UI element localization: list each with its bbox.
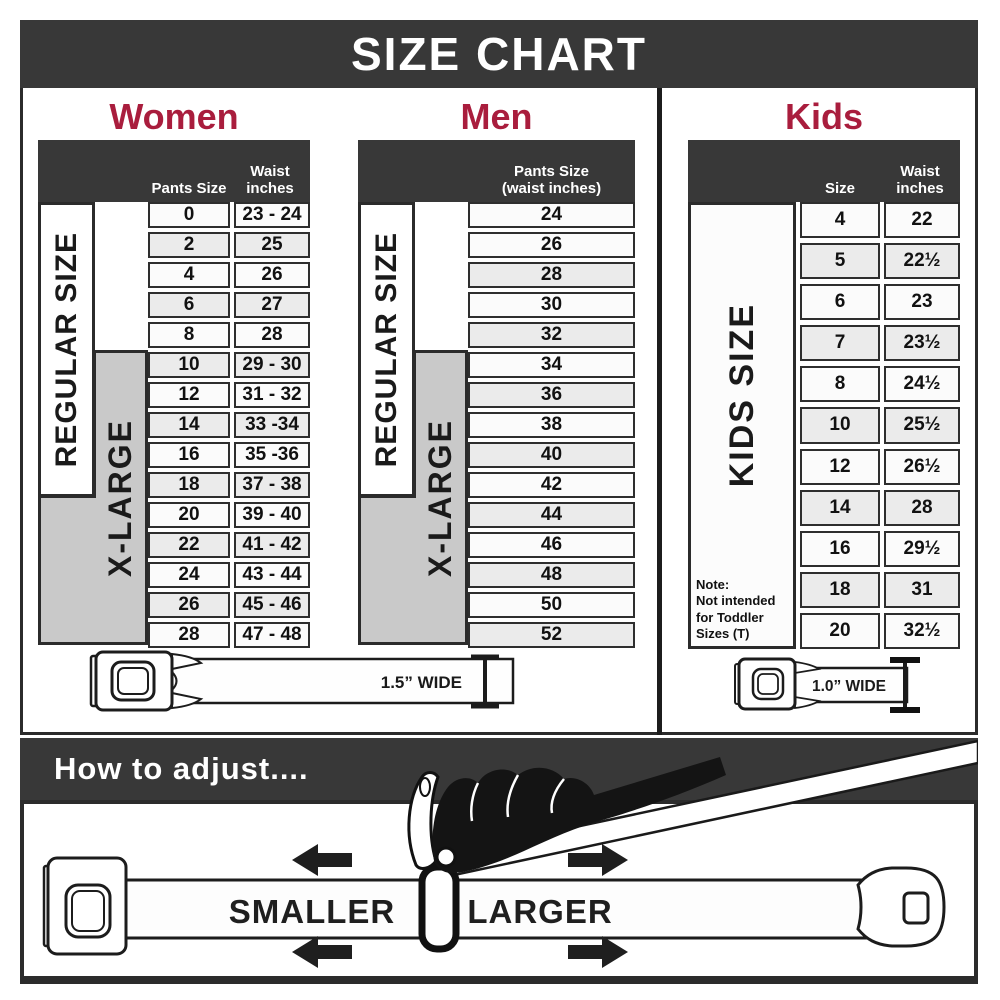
adjust-illustration: SMALLER LARGER: [20, 735, 978, 980]
adult-belt-width-label: 1.5” WIDE: [381, 673, 462, 692]
table-row: 18 31: [800, 572, 960, 608]
table-row: 34: [468, 352, 635, 378]
size-cell: 4: [800, 202, 880, 238]
pants-size-cell: 46: [468, 532, 635, 558]
pants-size-cell: 28: [468, 262, 635, 288]
pants-size-cell: 2: [148, 232, 230, 258]
waist-cell: 33 -34: [234, 412, 310, 438]
kids-size-header: Size: [800, 180, 880, 197]
waist-cell: 35 -36: [234, 442, 310, 468]
pants-size-cell: 30: [468, 292, 635, 318]
pants-size-cell: 18: [148, 472, 230, 498]
size-cell: 20: [800, 613, 880, 649]
size-cell: 18: [800, 572, 880, 608]
buckle-button-inner: [72, 891, 104, 931]
waist-cell: 24½: [884, 366, 960, 402]
title-bar: SIZE CHART: [20, 20, 978, 88]
waist-cell: 32½: [884, 613, 960, 649]
pants-size-cell: 38: [468, 412, 635, 438]
men-regular-size-band: REGULAR SIZE: [358, 202, 415, 497]
table-row: 52: [468, 622, 635, 648]
table-row: 8 28: [148, 322, 310, 348]
size-cell: 10: [800, 407, 880, 443]
women-pants-size-header: Pants Size: [148, 180, 230, 197]
kids-size-label: KIDS SIZE: [723, 303, 762, 487]
table-row: 2 25: [148, 232, 310, 258]
pants-size-cell: 26: [148, 592, 230, 618]
arrow-right-icon: [568, 936, 628, 968]
table-row: 14 28: [800, 490, 960, 526]
waist-cell: 26: [234, 262, 310, 288]
waist-cell: 41 - 42: [234, 532, 310, 558]
arrow-left-icon: [292, 936, 352, 968]
width-measure-cap-bottom: [890, 707, 920, 713]
waist-cell: 26½: [884, 449, 960, 485]
width-measure-cap-top: [890, 657, 920, 663]
table-row: 10 25½: [800, 407, 960, 443]
pants-size-cell: 10: [148, 352, 230, 378]
men-size-bands: REGULAR SIZE X-LARGE: [358, 202, 468, 645]
pants-size-cell: 20: [148, 502, 230, 528]
pants-size-cell: 12: [148, 382, 230, 408]
table-row: 50: [468, 592, 635, 618]
table-row: 40: [468, 442, 635, 468]
table-row: 4 26: [148, 262, 310, 288]
pants-size-cell: 24: [148, 562, 230, 588]
size-cell: 8: [800, 366, 880, 402]
table-row: 26 45 - 46: [148, 592, 310, 618]
thumb-tip: [437, 848, 455, 866]
table-row: 18 37 - 38: [148, 472, 310, 498]
women-waist-header: Waist inches: [234, 163, 306, 198]
men-heading: Men: [358, 96, 635, 138]
waist-cell: 27: [234, 292, 310, 318]
waist-cell: 37 - 38: [234, 472, 310, 498]
table-row: 12 26½: [800, 449, 960, 485]
table-row: 46: [468, 532, 635, 558]
pants-size-cell: 24: [468, 202, 635, 228]
women-regular-size-label: REGULAR SIZE: [50, 232, 84, 467]
women-table-header: Pants Size Waist inches: [38, 140, 310, 202]
pants-size-cell: 6: [148, 292, 230, 318]
larger-label: LARGER: [467, 893, 612, 930]
waist-cell: 22½: [884, 243, 960, 279]
table-row: 6 27: [148, 292, 310, 318]
size-cell: 14: [800, 490, 880, 526]
pants-size-cell: 8: [148, 322, 230, 348]
pants-size-cell: 26: [468, 232, 635, 258]
pants-size-cell: 22: [148, 532, 230, 558]
size-cell: 6: [800, 284, 880, 320]
smaller-label: SMALLER: [229, 893, 396, 930]
table-row: 36: [468, 382, 635, 408]
waist-cell: 29 - 30: [234, 352, 310, 378]
waist-cell: 28: [234, 322, 310, 348]
table-row: 42: [468, 472, 635, 498]
waist-cell: 31: [884, 572, 960, 608]
women-xlarge-band: X-LARGE: [93, 350, 148, 645]
belt-adjuster-slider: [422, 867, 456, 949]
pants-size-cell: 48: [468, 562, 635, 588]
waist-cell: 28: [884, 490, 960, 526]
table-row: 24 43 - 44: [148, 562, 310, 588]
men-header-line2: (waist inches): [468, 180, 635, 197]
table-row: 26: [468, 232, 635, 258]
buckle-button-inner: [118, 668, 148, 694]
table-row: 16 29½: [800, 531, 960, 567]
women-regular-size-band: REGULAR SIZE: [38, 202, 95, 497]
table-row: 14 33 -34: [148, 412, 310, 438]
women-size-bands: REGULAR SIZE X-LARGE: [38, 202, 148, 645]
waist-cell: 25: [234, 232, 310, 258]
kids-heading: Kids: [688, 96, 960, 138]
waist-cell: 23 - 24: [234, 202, 310, 228]
pants-size-cell: 36: [468, 382, 635, 408]
size-cell: 7: [800, 325, 880, 361]
table-row: 44: [468, 502, 635, 528]
table-row: 5 22½: [800, 243, 960, 279]
belt-tip: [858, 868, 944, 946]
table-row: 24: [468, 202, 635, 228]
table-row: 30: [468, 292, 635, 318]
waist-cell: 25½: [884, 407, 960, 443]
pants-size-cell: 42: [468, 472, 635, 498]
table-row: 32: [468, 322, 635, 348]
size-cell: 12: [800, 449, 880, 485]
pants-size-cell: 28: [148, 622, 230, 648]
men-regular-size-label: REGULAR SIZE: [370, 232, 404, 467]
kids-table-header: Size Waist inches: [688, 140, 960, 202]
pants-size-cell: 14: [148, 412, 230, 438]
table-row: 12 31 - 32: [148, 382, 310, 408]
waist-cell: 23: [884, 284, 960, 320]
pants-size-cell: 40: [468, 442, 635, 468]
kids-note-label: Note:: [696, 577, 796, 593]
men-table: 24 26 28 30 32 34 36: [468, 202, 635, 645]
men-header-line1: Pants Size: [468, 163, 635, 180]
table-row: 22 41 - 42: [148, 532, 310, 558]
men-xlarge-band: X-LARGE: [413, 350, 468, 645]
waist-cell: 23½: [884, 325, 960, 361]
pants-size-cell: 4: [148, 262, 230, 288]
table-row: 28: [468, 262, 635, 288]
kids-table: 4 22 5 22½ 6 23 7 23½ 8 24½: [800, 202, 960, 649]
adult-belt-illustration: 1.5” WIDE: [88, 650, 518, 714]
waist-cell: 39 - 40: [234, 502, 310, 528]
men-table-header: Pants Size (waist inches): [358, 140, 635, 202]
size-cell: 5: [800, 243, 880, 279]
men-xlarge-label: X-LARGE: [422, 419, 459, 577]
pants-size-cell: 0: [148, 202, 230, 228]
page-title: SIZE CHART: [351, 27, 647, 81]
pants-size-cell: 34: [468, 352, 635, 378]
table-row: 20 39 - 40: [148, 502, 310, 528]
size-cell: 16: [800, 531, 880, 567]
waist-cell: 47 - 48: [234, 622, 310, 648]
table-row: 10 29 - 30: [148, 352, 310, 378]
size-chart-image: SIZE CHART Women Pants Size Waist inches…: [0, 0, 1000, 1000]
pants-size-cell: 16: [148, 442, 230, 468]
table-row: 0 23 - 24: [148, 202, 310, 228]
waist-cell: 45 - 46: [234, 592, 310, 618]
table-row: 16 35 -36: [148, 442, 310, 468]
buckle-button-inner: [758, 674, 778, 694]
table-row: 7 23½: [800, 325, 960, 361]
table-row: 48: [468, 562, 635, 588]
table-row: 4 22: [800, 202, 960, 238]
kids-note-text: Not intended for Toddler Sizes (T): [696, 593, 796, 642]
men-pants-size-header: Pants Size (waist inches): [468, 163, 635, 198]
women-heading: Women: [38, 96, 310, 138]
waist-cell: 31 - 32: [234, 382, 310, 408]
kids-note: Note: Not intended for Toddler Sizes (T): [696, 577, 796, 642]
table-row: 6 23: [800, 284, 960, 320]
women-xlarge-label: X-LARGE: [102, 419, 139, 577]
arrow-left-icon: [292, 844, 352, 876]
waist-cell: 43 - 44: [234, 562, 310, 588]
kids-belt-width-label: 1.0” WIDE: [812, 678, 886, 695]
table-row: 20 32½: [800, 613, 960, 649]
waist-cell: 29½: [884, 531, 960, 567]
kids-waist-header: Waist inches: [884, 163, 956, 198]
table-row: 38: [468, 412, 635, 438]
table-row: 28 47 - 48: [148, 622, 310, 648]
kids-size-band: KIDS SIZE Note: Not intended for Toddler…: [688, 202, 796, 649]
pants-size-cell: 50: [468, 592, 635, 618]
women-table: 0 23 - 24 2 25 4 26 6 27 8 28: [148, 202, 310, 645]
waist-cell: 22: [884, 202, 960, 238]
pants-size-cell: 52: [468, 622, 635, 648]
kids-belt-illustration: 1.0” WIDE: [733, 656, 925, 714]
table-row: 8 24½: [800, 366, 960, 402]
pants-size-cell: 44: [468, 502, 635, 528]
pants-size-cell: 32: [468, 322, 635, 348]
fingernail: [420, 778, 430, 796]
panel-divider: [657, 88, 662, 735]
belt-tip-hole: [904, 893, 928, 923]
